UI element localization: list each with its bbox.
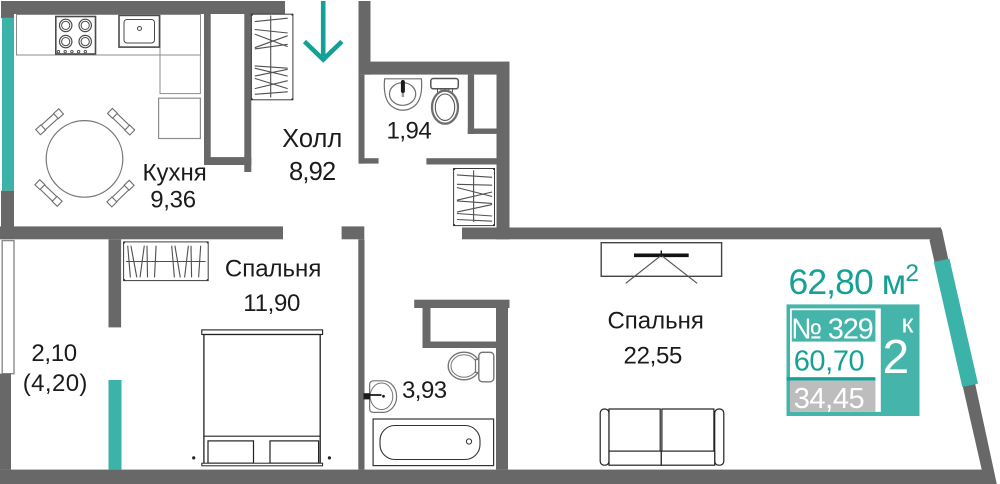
svg-text:Кухня: Кухня [142,160,206,187]
svg-text:(4,20): (4,20) [23,370,88,397]
svg-text:к: к [902,309,914,339]
svg-text:2,10: 2,10 [31,340,77,367]
svg-text:2: 2 [883,331,910,384]
svg-text:22,55: 22,55 [624,342,683,369]
svg-text:11,90: 11,90 [243,290,300,317]
svg-text:8,92: 8,92 [289,158,335,186]
svg-text:34,45: 34,45 [794,383,865,415]
svg-text:Холл: Холл [282,125,342,153]
svg-text:№ 329: № 329 [791,314,873,346]
svg-text:60,70: 60,70 [794,346,865,378]
svg-text:9,36: 9,36 [150,187,196,214]
svg-text:3,93: 3,93 [402,377,447,404]
svg-text:Спальня: Спальня [607,307,703,334]
svg-text:62,80 м2: 62,80 м2 [789,260,919,302]
svg-text:1,94: 1,94 [387,118,432,145]
svg-text:Спальня: Спальня [225,255,321,282]
